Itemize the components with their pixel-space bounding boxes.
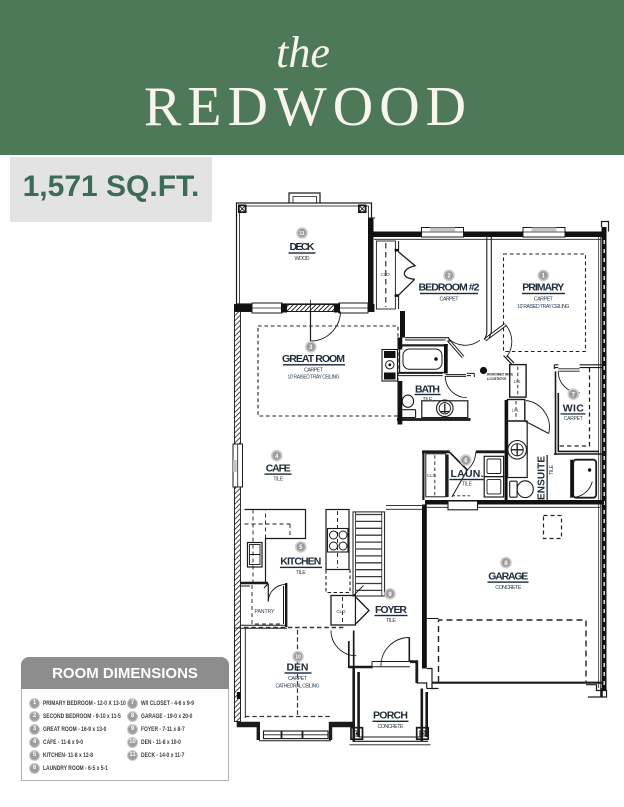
svg-text:CARPET: CARPET: [440, 296, 460, 302]
svg-text:PORCH: PORCH: [373, 710, 408, 722]
svg-text:CLO.: CLO.: [381, 272, 391, 277]
svg-text:CARPET: CARPET: [288, 676, 308, 682]
svg-text:GARAGE: GARAGE: [488, 570, 528, 582]
svg-text:BEDROOM #2: BEDROOM #2: [419, 282, 480, 294]
svg-text:WIC: WIC: [563, 402, 584, 414]
svg-text:TILE: TILE: [549, 464, 555, 475]
svg-text:TILE: TILE: [273, 477, 283, 483]
svg-text:CARPET: CARPET: [304, 367, 324, 373]
svg-text:CARPET: CARPET: [564, 416, 583, 422]
svg-text:LIN.: LIN.: [512, 408, 520, 413]
svg-text:PANTRY: PANTRY: [255, 609, 276, 615]
svg-text:WOOD: WOOD: [295, 256, 310, 262]
svg-text:KITCHEN: KITCHEN: [280, 556, 321, 568]
svg-text:10' RAISED TRAY CEILING: 10' RAISED TRAY CEILING: [517, 304, 569, 310]
svg-text:CONCRETE: CONCRETE: [495, 585, 521, 591]
svg-text:DEN: DEN: [287, 661, 309, 673]
svg-text:LIN.: LIN.: [514, 379, 522, 384]
svg-text:CLO.: CLO.: [336, 609, 346, 614]
svg-text:TILE: TILE: [386, 618, 396, 624]
svg-text:CAFE: CAFE: [266, 462, 291, 474]
svg-text:10: 10: [295, 655, 301, 661]
svg-text:PRIMARY: PRIMARY: [522, 282, 564, 294]
svg-text:CONCRETE: CONCRETE: [378, 724, 404, 730]
svg-text:BATH: BATH: [415, 383, 440, 395]
svg-text:TILE: TILE: [423, 397, 433, 403]
svg-text:DECK: DECK: [290, 241, 315, 253]
svg-text:LAUN.: LAUN.: [451, 468, 484, 480]
svg-text:11: 11: [299, 231, 305, 237]
svg-text:CATHEDRAL CEILING: CATHEDRAL CEILING: [276, 683, 320, 689]
svg-text:10' RAISED TRAY CEILING: 10' RAISED TRAY CEILING: [288, 375, 340, 381]
svg-text:FOYER: FOYER: [375, 604, 407, 616]
svg-text:TILE: TILE: [462, 482, 473, 488]
svg-text:GREAT ROOM: GREAT ROOM: [282, 353, 345, 365]
svg-text:TILE: TILE: [296, 570, 306, 576]
svg-text:CARPET: CARPET: [534, 296, 554, 302]
svg-text:CLO.: CLO.: [427, 473, 437, 478]
svg-text:ENSUITE: ENSUITE: [537, 456, 548, 500]
svg-text:& CO DETECTOR: & CO DETECTOR: [487, 377, 506, 381]
